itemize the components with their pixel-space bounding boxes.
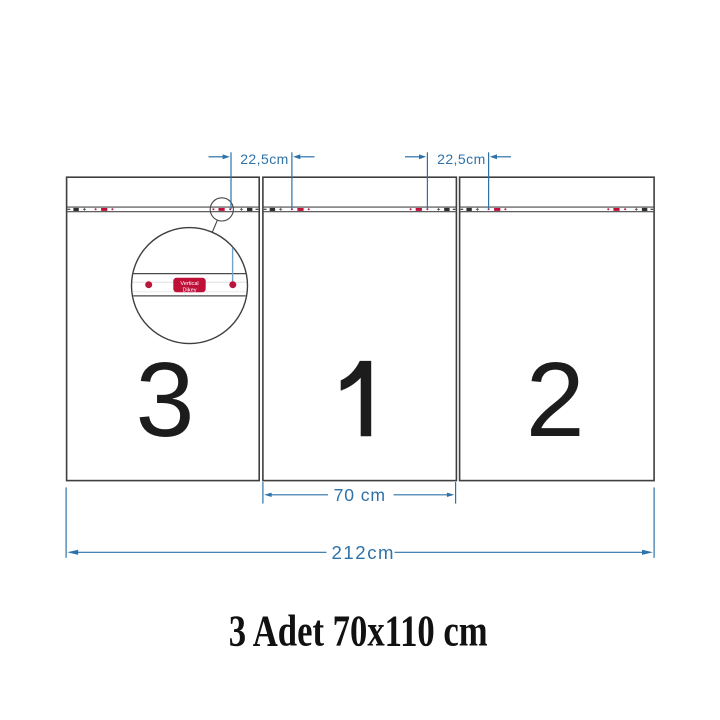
svg-text:3 Adet 70x110 cm: 3 Adet 70x110 cm [229, 606, 488, 655]
svg-text:70 cm: 70 cm [334, 485, 386, 505]
svg-text:22,5cm: 22,5cm [437, 151, 486, 167]
svg-text:212cm: 212cm [332, 542, 396, 563]
svg-text:Dikey: Dikey [183, 287, 197, 293]
svg-text:2: 2 [526, 341, 585, 459]
svg-text:3: 3 [136, 341, 195, 459]
svg-text:22,5cm: 22,5cm [240, 151, 289, 167]
svg-text:Vertical: Vertical [180, 281, 198, 287]
